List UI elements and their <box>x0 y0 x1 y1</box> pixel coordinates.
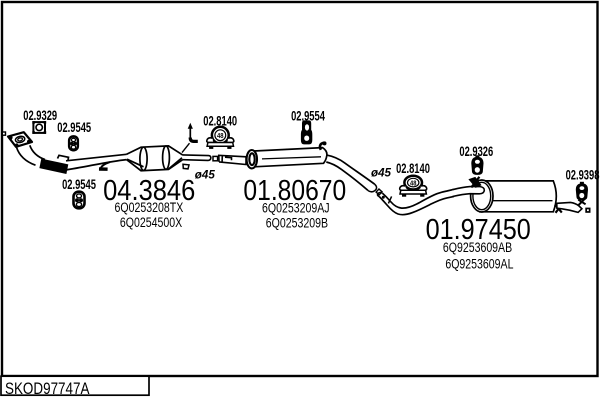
svg-text:02.9398: 02.9398 <box>566 169 600 183</box>
svg-text:48: 48 <box>217 132 224 140</box>
svg-text:6Q0253208TX: 6Q0253208TX <box>115 200 184 216</box>
svg-text:ø45: ø45 <box>195 169 216 182</box>
svg-text:02.9329: 02.9329 <box>23 110 57 124</box>
svg-text:6Q9253609AL: 6Q9253609AL <box>445 256 513 272</box>
svg-text:6Q0253209AJ: 6Q0253209AJ <box>262 200 330 216</box>
svg-text:48: 48 <box>410 180 417 188</box>
svg-text:02.8140: 02.8140 <box>396 163 430 177</box>
svg-text:SKOD97747A: SKOD97747A <box>5 380 89 399</box>
svg-text:6Q9253609AB: 6Q9253609AB <box>443 240 512 256</box>
svg-text:02.9554: 02.9554 <box>291 110 325 124</box>
svg-text:6Q0253209B: 6Q0253209B <box>266 215 328 231</box>
svg-text:02.9326: 02.9326 <box>459 145 493 159</box>
svg-text:02.8140: 02.8140 <box>203 115 237 129</box>
svg-text:6Q0254500X: 6Q0254500X <box>120 214 182 230</box>
svg-text:02.9545: 02.9545 <box>57 122 91 136</box>
svg-text:ø45: ø45 <box>371 166 392 179</box>
svg-text:02.9545: 02.9545 <box>62 179 96 193</box>
